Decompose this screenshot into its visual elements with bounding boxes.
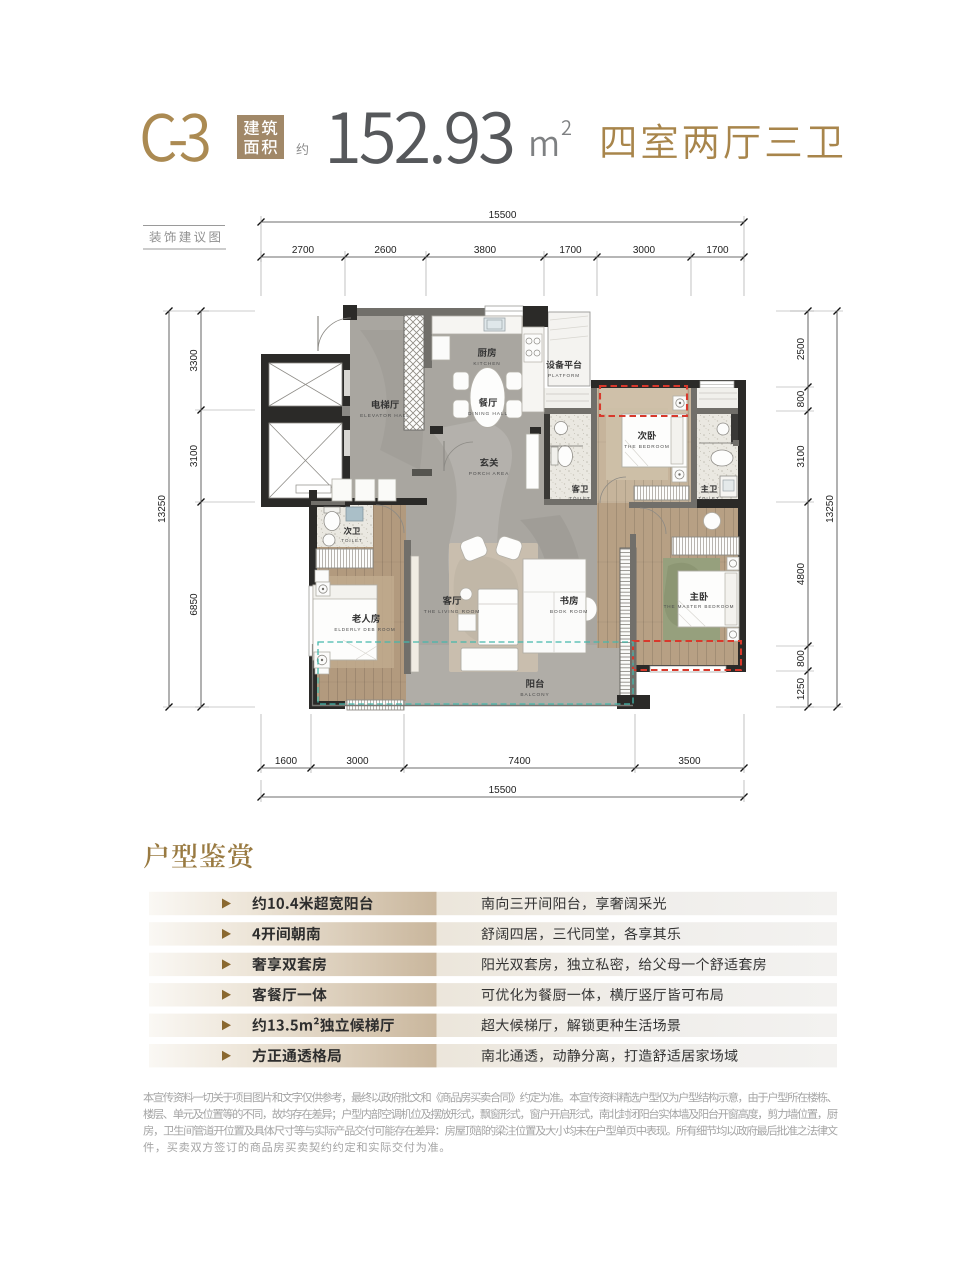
svg-text:800: 800 (796, 650, 807, 667)
svg-text:15500: 15500 (489, 785, 517, 796)
svg-text:13250: 13250 (825, 495, 836, 523)
svg-text:6850: 6850 (189, 593, 200, 616)
svg-text:2500: 2500 (796, 337, 807, 360)
svg-text:3800: 3800 (474, 245, 497, 256)
svg-text:3000: 3000 (633, 245, 656, 256)
svg-text:1250: 1250 (796, 677, 807, 700)
svg-text:TOILET: TOILET (341, 538, 362, 543)
svg-text:2700: 2700 (292, 245, 315, 256)
svg-text:1700: 1700 (559, 245, 582, 256)
svg-text:THE BEDROOM: THE BEDROOM (624, 444, 670, 450)
svg-text:BOOK ROOM: BOOK ROOM (550, 609, 588, 615)
svg-text:ELEVATOR HALL: ELEVATOR HALL (360, 413, 410, 419)
svg-text:800: 800 (796, 390, 807, 407)
svg-text:1600: 1600 (275, 756, 298, 767)
svg-text:7400: 7400 (508, 756, 531, 767)
svg-text:3500: 3500 (678, 756, 701, 767)
svg-text:13250: 13250 (157, 495, 168, 523)
svg-text:15500: 15500 (489, 210, 517, 221)
svg-text:PORCH AREA: PORCH AREA (469, 471, 509, 477)
svg-text:1700: 1700 (706, 245, 729, 256)
svg-text:BALCONY: BALCONY (520, 692, 549, 698)
svg-text:THE LIVING ROOM: THE LIVING ROOM (424, 609, 480, 615)
svg-text:3300: 3300 (189, 349, 200, 372)
svg-text:ELDERLY DEB ROOM: ELDERLY DEB ROOM (334, 627, 395, 632)
svg-text:4800: 4800 (796, 562, 807, 585)
svg-text:PLATFORM: PLATFORM (548, 373, 580, 378)
svg-text:3100: 3100 (796, 445, 807, 468)
svg-text:KITCHEN: KITCHEN (473, 361, 500, 367)
svg-text:TOILET: TOILET (569, 496, 590, 501)
svg-text:TOILET: TOILET (698, 496, 719, 501)
svg-text:THE MASTER BEDROOM: THE MASTER BEDROOM (664, 604, 735, 609)
svg-text:DINING HALL: DINING HALL (468, 411, 508, 417)
svg-text:3000: 3000 (346, 756, 369, 767)
svg-text:2600: 2600 (374, 245, 397, 256)
svg-text:3100: 3100 (189, 444, 200, 467)
